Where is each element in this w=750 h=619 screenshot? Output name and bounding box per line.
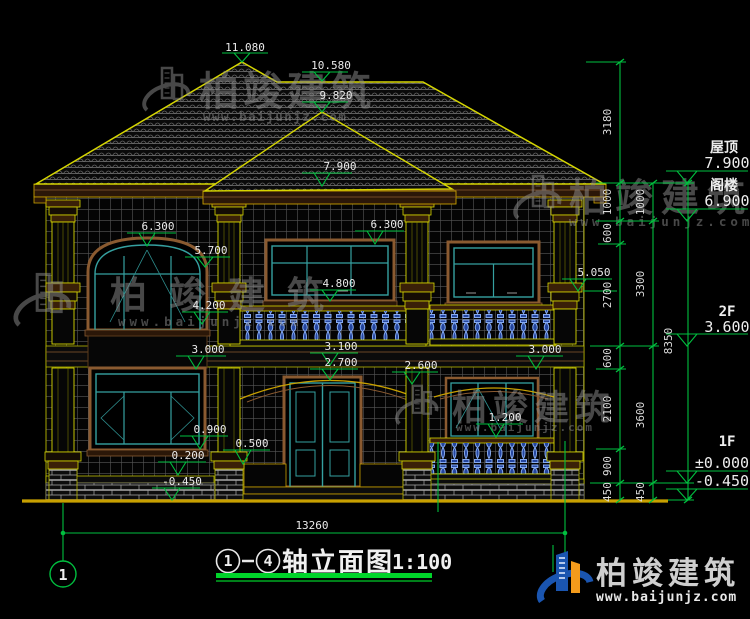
dim-chain-middle-value: 3600 (634, 402, 647, 429)
axis-bubble-number: 1 (58, 566, 67, 584)
floor-level-value: -0.450 (695, 472, 749, 490)
dim-chain-middle-value: 450 (634, 482, 647, 502)
elevation-marker-value: 2.700 (324, 356, 357, 369)
elevation-marker-value: 5.050 (577, 266, 610, 279)
balcony-balustrade-right (430, 305, 556, 345)
elevation-marker-value: 0.500 (235, 437, 268, 450)
dimension-chain-values: 3180 1000 600 2700 600 2100 900 450 1000… (601, 109, 675, 502)
elevation-marker-value: 10.580 (311, 59, 351, 72)
dim-chain-inner-value: 600 (601, 223, 614, 243)
dim-chain-inner-value: 450 (601, 482, 614, 502)
floor-level-value: 3.600 (704, 318, 749, 336)
drawing-scale: 1:100 (392, 550, 452, 574)
elevation-marker-value: 11.080 (225, 41, 265, 54)
elevation-marker-value: 2.600 (404, 359, 437, 372)
dim-chain-inner-value: 2700 (601, 282, 614, 309)
dim-chain-middle-value: 1000 (634, 189, 647, 216)
logo-building-orange (571, 561, 580, 593)
drawing-title-block: 1 4 轴立面图 1:100 (216, 547, 452, 582)
dim-chain-inner-value: 900 (601, 456, 614, 476)
brand-url-text: www.baijunjz.com (596, 590, 737, 605)
floor-level-label: 1F (719, 434, 736, 450)
elevation-marker-value: 6.300 (141, 220, 174, 233)
title-axis-start: 1 (223, 552, 232, 570)
floor-level-value: 6.900 (704, 192, 749, 210)
cad-elevation-screenshot: 柏竣建筑 www.baijunjz.com 柏竣建筑 www.baijunjz.… (0, 0, 750, 619)
brand-name-text: 柏竣建筑 (596, 556, 740, 592)
first-floor-left-window (87, 368, 208, 456)
elevation-marker-value: 3.000 (191, 343, 224, 356)
floor-level-value: 7.900 (704, 154, 749, 172)
porch-balustrade-right (430, 438, 556, 480)
dim-chain-inner-value: 600 (601, 348, 614, 368)
elevation-marker-value: 6.300 (370, 218, 403, 231)
elevation-marker-value: 0.900 (193, 423, 226, 436)
watermark-brand-text: 柏竣建筑 (110, 274, 346, 317)
dim-chain-inner-value: 2100 (601, 396, 614, 423)
overall-width-dimension: 13260 (295, 519, 328, 532)
elevation-marker-value: 3.000 (528, 343, 561, 356)
elevation-marker-value: 5.700 (194, 244, 227, 257)
watermark-url-text: www.baijunjz.com (203, 109, 347, 124)
elevation-marker-value: 9.820 (319, 89, 352, 102)
floor-level-value: ±0.000 (695, 454, 749, 472)
dim-chain-inner-value: 3180 (601, 109, 614, 136)
elevation-drawing-canvas: 柏竣建筑 www.baijunjz.com 柏竣建筑 www.baijunjz.… (0, 0, 750, 619)
elevation-marker-value: 0.200 (171, 449, 204, 462)
second-floor-right-window (445, 242, 542, 308)
logo-building-blue (556, 551, 568, 591)
brand-logo: 柏竣建筑 www.baijunjz.com (540, 551, 740, 605)
elevation-marker-value: 1.200 (488, 411, 521, 424)
watermark-url-text: www.baijunjz.com (118, 314, 302, 329)
watermark-url-text: www.baijunjz.com (456, 421, 594, 434)
spandrel-panel (88, 336, 207, 368)
title-underline (216, 573, 432, 578)
dim-chain-inner-value: 1000 (601, 189, 614, 216)
dim-chain-middle-value: 3300 (634, 271, 647, 298)
elevation-marker-value: 4.200 (192, 299, 225, 312)
elevation-marker-value: 7.900 (323, 160, 356, 173)
elevation-marker-value: -0.450 (162, 475, 202, 488)
dim-chain-outer-value: 8350 (662, 328, 675, 355)
elevation-marker-value: 3.100 (324, 340, 357, 353)
entrance-door (284, 377, 361, 487)
elevation-marker-value: 4.800 (322, 277, 355, 290)
title-axis-end: 4 (263, 552, 272, 570)
